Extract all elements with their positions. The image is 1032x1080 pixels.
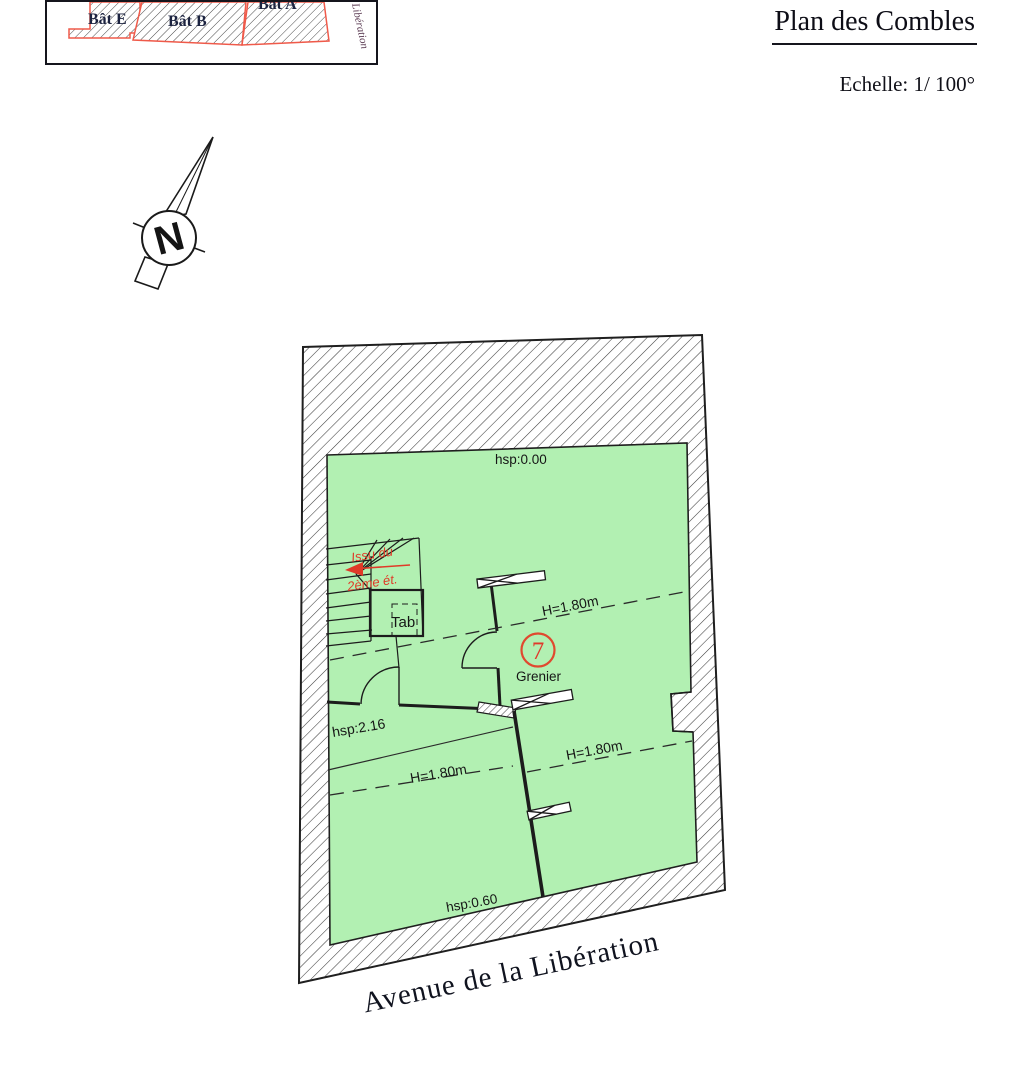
tab-label: Tab bbox=[391, 614, 415, 631]
plan-page: { "header": { "title": "Plan des Combles… bbox=[0, 0, 1032, 1080]
inset-building-E-label: Bât E bbox=[88, 11, 127, 28]
north-arrow-needle-midline bbox=[174, 137, 213, 216]
location-inset-map: Bât E Bât B Bât A Libération bbox=[45, 0, 378, 65]
attic-room-area bbox=[327, 443, 697, 945]
room-name: Grenier bbox=[516, 669, 562, 684]
north-arrow: N bbox=[95, 115, 235, 300]
inset-street-label: Libération bbox=[349, 2, 371, 51]
inset-building-B-label: Bât B bbox=[168, 13, 207, 30]
inset-map-drawing: Bât E Bât B Bât A Libération bbox=[47, 2, 376, 63]
label-hsp-top: hsp:0.00 bbox=[495, 452, 547, 467]
north-arrow-needle bbox=[162, 137, 213, 218]
page-title: Plan des Combles bbox=[772, 6, 977, 45]
floor-plan: hsp:0.00 hsp:2.16 hsp:0.60 H=1.80m H=1.8… bbox=[270, 320, 760, 1020]
inset-building-A-label: Bât A bbox=[258, 2, 297, 13]
scale-label: Echelle: 1/ 100° bbox=[839, 72, 975, 97]
room-number: 7 bbox=[532, 638, 545, 665]
